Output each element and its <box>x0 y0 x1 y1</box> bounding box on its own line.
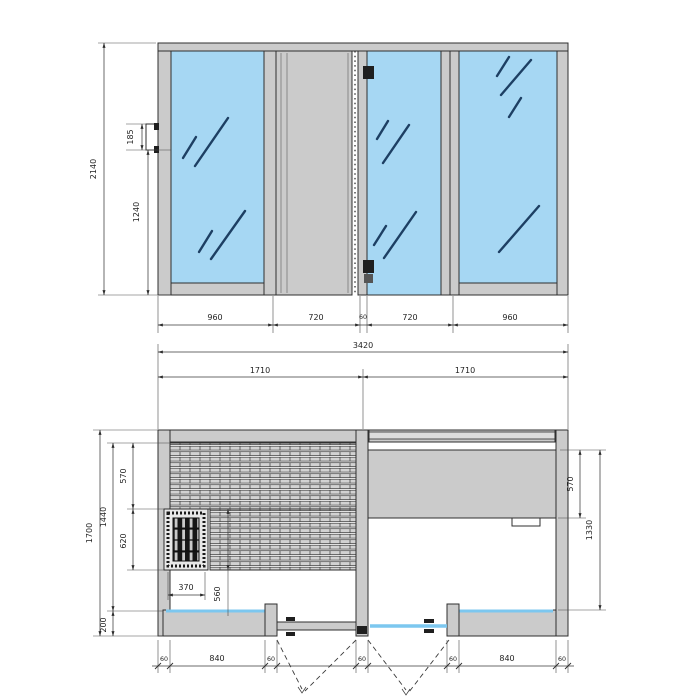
dim-label-2140: 2140 <box>89 159 98 179</box>
right-post <box>557 51 568 295</box>
dim-label-570-counter: 570 <box>566 476 575 491</box>
sauna-heater <box>164 509 208 570</box>
dim-label-720-right: 720 <box>402 313 417 322</box>
sauna-technical-drawing: 2140 185 1240 960 720 60 720 960 <box>0 0 700 700</box>
counter-fitting <box>512 518 540 526</box>
right-glass-bottom-rail <box>459 283 557 295</box>
dim-label-720-left: 720 <box>308 313 323 322</box>
dim-label-60-c: 60 <box>358 656 366 663</box>
dim-label-1710-right: 1710 <box>455 366 475 375</box>
elevation-view <box>146 43 568 295</box>
dim-label-840-left: 840 <box>209 654 224 663</box>
plan-solid-door <box>277 622 356 630</box>
divider-fitting <box>357 626 367 634</box>
dim-label-60-d: 60 <box>449 656 457 663</box>
mid-post <box>264 51 276 295</box>
top-rail <box>158 43 568 51</box>
front-post-right-inner <box>447 604 459 636</box>
dim-label-1440: 1440 <box>99 507 108 527</box>
door-hinge-bottom <box>363 260 374 273</box>
wall-fitting-lug-top <box>154 123 159 130</box>
dim-label-840-right: 840 <box>499 654 514 663</box>
counter-table <box>368 450 556 518</box>
front-post-left-inner <box>265 604 277 636</box>
dim-label-570-bench: 570 <box>119 468 128 483</box>
plan-glass-door-handle-b <box>424 629 434 633</box>
dim-label-185: 185 <box>126 129 135 144</box>
door-bottom-fitting <box>364 274 373 283</box>
dim-label-200: 200 <box>99 617 108 632</box>
plan-glass-door-handle-a <box>424 619 434 623</box>
dim-label-60-e: 60 <box>558 656 566 663</box>
dim-label-960-right: 960 <box>502 313 517 322</box>
plan-solid-door-hinge-b <box>286 632 295 636</box>
lower-bench-slats <box>210 509 356 570</box>
dim-label-60-center: 60 <box>359 314 367 321</box>
front-block-right <box>450 610 556 636</box>
dim-label-1330: 1330 <box>585 520 594 540</box>
left-glass-bottom-rail <box>171 283 264 295</box>
wall-fitting-lug-bottom <box>154 146 159 153</box>
dim-label-1710-left: 1710 <box>250 366 270 375</box>
door-jamb-post <box>358 51 367 295</box>
dim-label-1700: 1700 <box>85 523 94 543</box>
dim-label-60-a: 60 <box>160 656 168 663</box>
dim-label-370: 370 <box>178 583 193 592</box>
left-post <box>158 51 171 295</box>
divider-wall <box>356 430 368 636</box>
back-wall-rail-right <box>368 432 556 439</box>
door-swing-lines <box>277 640 449 695</box>
dim-label-560: 560 <box>213 586 222 601</box>
front-block-left <box>163 610 269 636</box>
dim-label-960-left: 960 <box>207 313 222 322</box>
glass-door-panel <box>367 51 441 295</box>
right-wall <box>556 430 568 636</box>
door-stile <box>441 51 450 295</box>
plan-solid-door-hinge-a <box>286 617 295 621</box>
dim-label-3420: 3420 <box>353 341 373 350</box>
drawing-canvas: 2140 185 1240 960 720 60 720 960 <box>0 0 700 700</box>
dim-label-620: 620 <box>119 533 128 548</box>
dim-label-60-b: 60 <box>267 656 275 663</box>
upper-bench-slats <box>170 443 356 509</box>
door-hinge-top <box>363 66 374 79</box>
dim-label-1240: 1240 <box>132 202 141 222</box>
right-mid-post <box>450 51 459 295</box>
